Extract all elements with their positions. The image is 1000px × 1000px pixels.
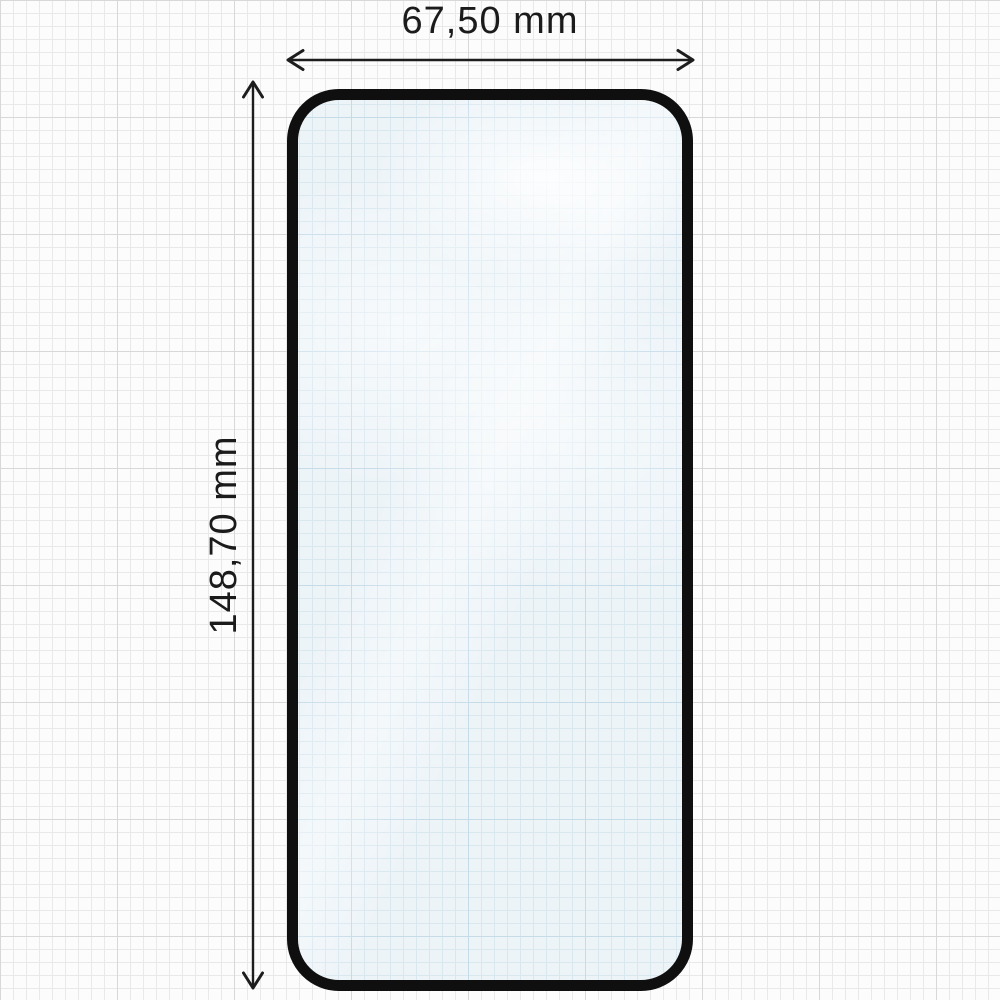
screen-protector-outline [287,89,693,991]
glass-reflection [298,100,682,980]
graph-paper-background: 67,50 mm 148,70 mm [0,0,1000,1000]
height-dimension-label: 148,70 mm [201,435,247,634]
width-dimension-label: 67,50 mm [287,0,693,44]
horizontal-dimension-arrow [288,51,693,70]
